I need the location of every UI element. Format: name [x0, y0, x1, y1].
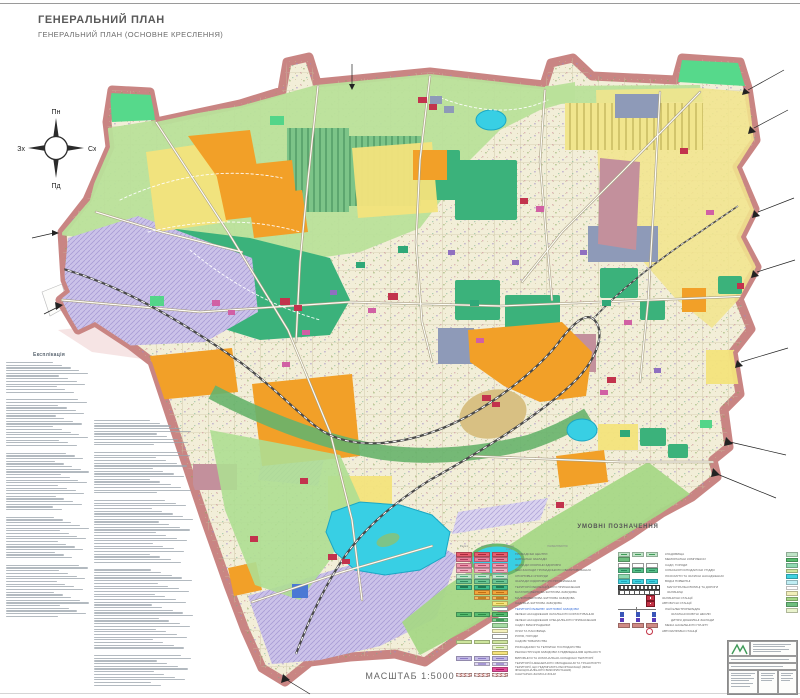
legend-swatch — [632, 629, 644, 634]
explication-line — [6, 463, 64, 464]
legend-swatch-inner — [478, 565, 486, 566]
explication-line — [6, 522, 71, 523]
legend-swatch-inner — [460, 554, 468, 555]
legend-row-label: ЛІНІЇ ЕЛЕКТРОПЕРЕДАЧ — [665, 608, 700, 611]
legend-swatch — [492, 607, 508, 612]
legend-swatch — [474, 563, 490, 568]
explication-line — [94, 463, 177, 464]
road-symbol — [618, 585, 660, 590]
legend-swatch — [786, 608, 798, 613]
legend-row: КЛАДОВИЩА — [618, 552, 796, 557]
explication-line — [6, 578, 85, 579]
explication-line — [6, 426, 53, 427]
legend-swatch-inner — [649, 554, 655, 555]
explication-line — [94, 674, 164, 675]
legend-row: МЕЖА НАСЕЛЕНОГО ПУНКТУ — [618, 623, 796, 628]
legend-swatch — [632, 623, 644, 628]
legend-col-header: на I чергу — [478, 545, 494, 548]
legend-row-label: САДОВІ ТОВАРИСТВА — [515, 640, 547, 643]
genplan-sheet: { "header": { "title": "ГЕНЕРАЛЬНИЙ ПЛАН… — [0, 0, 800, 698]
legend-swatch-inner — [460, 559, 468, 560]
legend-row: ЗАЛІЗНИЧНІ СТАНЦІЇ — [618, 596, 796, 601]
explication-line — [94, 580, 192, 581]
legend-row-label: КЛАДОВИЩА — [665, 553, 684, 556]
explication-line — [6, 399, 78, 400]
legend-swatch — [618, 552, 630, 557]
legend-row-label: ТЕРИТОРІЇ РЕКРЕАЦІЙНОГО ПРИЗНАЧЕННЯ — [515, 586, 580, 589]
explication-line — [6, 586, 74, 587]
explication-line — [94, 511, 162, 512]
explication-line — [94, 428, 181, 429]
legend-swatch-inner — [649, 581, 655, 582]
explication-line — [94, 431, 191, 432]
legend-swatch — [492, 552, 508, 557]
legend-row: АВТОЗАПРАВНІ СТАНЦІЇ — [618, 629, 796, 634]
explication-line — [6, 381, 77, 382]
legend-row-label: ВИРОБНИЧІ ТА КОМУНАЛЬНО-СКЛАДСЬКІ ТЕРИТО… — [515, 657, 593, 660]
explication-line — [6, 573, 68, 574]
legend-swatch — [618, 596, 630, 601]
legend-swatch — [474, 656, 490, 661]
legend-swatch — [474, 651, 490, 656]
explication-line — [94, 540, 187, 541]
legend-swatch — [786, 569, 798, 574]
explication-line — [94, 626, 190, 627]
legend-row-label: САДИБНА ЖИТЛОВА ЗАБУДОВА — [515, 602, 562, 605]
explication-line — [6, 557, 72, 558]
explication-line — [6, 367, 71, 368]
legend-row-label: РІЛЛЯ, ГОРОДИ — [515, 635, 538, 638]
legend-row-label: ЗЕЛЕНІ НАСАДЖЕННЯ СПЕЦІАЛЬНОГО ПРИЗНАЧЕН… — [515, 619, 596, 622]
explication-line — [6, 536, 77, 537]
explication-gap — [94, 687, 196, 692]
legend-row-label: АВТОБУСНІ СТАНЦІЇ — [662, 602, 692, 605]
legend-swatch-inner — [621, 570, 627, 571]
legend-swatch — [456, 662, 472, 667]
explication-line — [6, 490, 76, 491]
explication-line — [94, 588, 179, 589]
legend-swatch — [492, 618, 508, 623]
explication-line — [6, 477, 70, 478]
explication-line — [6, 576, 77, 577]
legend-swatch-inner — [478, 614, 486, 615]
explication-line — [6, 533, 69, 534]
explication-line — [6, 402, 87, 403]
explication-line — [94, 572, 161, 573]
legend-swatch — [492, 634, 508, 639]
stamp-col-left — [728, 670, 758, 694]
legend-row-label: ТЕРИТОРІЇ РЕЗЕРВУ ЖИТЛОВОЇ ЗАБУДОВИ — [515, 608, 579, 611]
explication-line — [6, 445, 77, 446]
explication-line — [6, 432, 71, 433]
legend-swatch — [456, 579, 472, 584]
legend-swatch — [474, 574, 490, 579]
legend-swatch — [474, 623, 490, 628]
legend-extra-swatches — [786, 552, 798, 614]
legend-swatch-inner — [496, 619, 504, 620]
explication-line — [6, 608, 69, 609]
legend-row: ЛІСОСМУГИ ТА ЗАХИСНІ НАСАДЖЕННЯ — [618, 574, 796, 579]
explication-line — [94, 442, 188, 443]
explication-gap — [6, 448, 92, 453]
explication-line — [94, 500, 165, 501]
legend-swatch-inner — [478, 658, 486, 659]
explication-line — [94, 660, 157, 661]
legend-row: ІНШІ ЗАКЛАДИ ГРОМАДСЬКОГО ОБСЛУГОВУВАННЯ — [456, 568, 612, 573]
legend-swatch — [618, 574, 630, 579]
explication-line — [6, 528, 89, 529]
legend-swatch — [492, 590, 508, 595]
explication-line — [6, 589, 83, 590]
facility-square-symbol — [652, 618, 656, 622]
explication-line — [6, 538, 86, 539]
explication-text-lines — [94, 420, 196, 692]
explication-line — [6, 584, 65, 585]
legend-swatch — [492, 568, 508, 573]
explication-line — [6, 565, 79, 566]
stamp-col-right — [778, 670, 797, 694]
explication-line — [94, 634, 177, 635]
explication-line — [6, 480, 78, 481]
legend-swatch — [492, 574, 508, 579]
explication-line — [94, 577, 182, 578]
explication-line — [6, 610, 77, 611]
explication-line — [94, 658, 191, 659]
legend-swatch — [632, 574, 644, 579]
legend-swatch-inner — [496, 603, 504, 604]
legend-swatch-inner — [496, 581, 504, 582]
legend-row-label: МЕЖА НАСЕЛЕНОГО ПУНКТУ — [665, 624, 708, 627]
facility-square-symbol — [620, 618, 624, 622]
legend-swatch — [456, 590, 472, 595]
explication-line — [6, 405, 58, 406]
explication-line — [6, 434, 79, 435]
explication-line — [94, 642, 163, 643]
legend-row: ВОДНІ ПОВЕРХНІ — [618, 579, 796, 584]
explication-line — [94, 575, 172, 576]
legend-row: МАЛОПОВЕРХОВА ЖИТЛОВА ЗАБУДОВА — [456, 596, 612, 601]
explication-column-1: Експлікація — [6, 352, 92, 624]
explication-line — [6, 421, 73, 422]
legend-row: ЗАКЛАДИ ОХОРОНИ ЗДОРОВ'Я — [456, 563, 612, 568]
legend-swatch — [456, 557, 472, 562]
legend-swatch-inner — [496, 565, 504, 566]
explication-line — [94, 505, 186, 506]
legend-swatch — [456, 651, 472, 656]
legend-swatch-inner — [649, 570, 655, 571]
facility-square-symbol — [652, 612, 656, 616]
explication-line — [94, 647, 184, 648]
legend-swatch — [492, 601, 508, 606]
legend-swatch — [786, 586, 798, 591]
legend-row-label: ЗАЛІЗНИЦІ — [667, 591, 683, 594]
explication-line — [94, 455, 190, 456]
legend-swatch-inner — [496, 592, 504, 593]
explication-line — [94, 586, 168, 587]
legend-row: ТЕРИТОРІЇ РЕЗЕРВУ ЖИТЛОВОЇ ЗАБУДОВИ — [456, 607, 612, 612]
explication-line — [94, 607, 162, 608]
legend-swatch — [474, 618, 490, 623]
legend-row-label: САДИ, ГОРОДИ — [665, 564, 687, 567]
explication-column-2 — [94, 420, 196, 692]
legend-swatch — [786, 591, 798, 596]
legend-swatch-inner — [496, 597, 504, 598]
legend-swatch-inner — [496, 554, 504, 555]
legend-swatch — [456, 629, 472, 634]
legend-swatch — [474, 596, 490, 601]
explication-line — [94, 618, 159, 619]
legend-swatch-inner — [478, 586, 486, 587]
legend-row-label: МЕМОРІАЛЬНІ КОМПЛЕКСИ — [665, 558, 706, 561]
explication-line — [94, 682, 151, 683]
explication-line — [94, 610, 173, 611]
explication-line — [6, 373, 88, 374]
legend-row: САДИ І ВИНОГРАДНИКИ — [456, 623, 612, 628]
explication-line — [94, 594, 155, 595]
explication-line — [94, 503, 176, 504]
explication-line — [94, 655, 181, 656]
legend-row-label: ВОДНІ ПОВЕРХНІ — [665, 580, 690, 583]
explication-line — [94, 685, 161, 686]
legend-swatch — [632, 601, 644, 606]
legend-swatch — [786, 597, 798, 602]
title-block-stamp — [727, 640, 798, 695]
explication-line — [6, 375, 59, 376]
explication-line — [94, 524, 169, 525]
explication-line — [94, 521, 159, 522]
legend-swatch — [492, 651, 508, 656]
legend-swatch — [786, 558, 798, 563]
legend-swatch — [646, 557, 658, 562]
legend-swatch — [618, 629, 630, 634]
explication-line — [6, 501, 73, 502]
explication-line — [94, 554, 150, 555]
explication-line — [6, 616, 58, 617]
explication-line — [94, 490, 191, 491]
explication-line — [6, 423, 82, 424]
legend-swatch — [618, 568, 630, 573]
explication-line — [94, 420, 150, 421]
explication-line — [94, 471, 163, 472]
explication-line — [6, 440, 59, 441]
legend-row: ЗАГАЛЬНООСВІТНІ ШКОЛИ — [618, 612, 796, 617]
legend-row: НАВЧАЛЬНІ ЗАКЛАДИ — [456, 557, 612, 562]
explication-line — [94, 645, 174, 646]
legend-row: АВТОБУСНІ СТАНЦІЇ — [618, 601, 796, 606]
legend-swatch — [474, 640, 490, 645]
legend-swatch-inner — [496, 647, 504, 648]
explication-line — [94, 484, 171, 485]
legend-swatch — [474, 557, 490, 562]
explication-line — [94, 433, 157, 434]
explication-line — [94, 631, 166, 632]
explication-line — [6, 594, 63, 595]
explication-line — [6, 496, 56, 497]
explication-line — [94, 516, 183, 517]
explication-line — [6, 600, 80, 601]
legend-row-label: СІЛЬСЬКОГОСПОДАРСЬКІ УГІДДЯ — [665, 569, 715, 572]
legend-row: РІЛЛЯ, ГОРОДИ — [456, 634, 612, 639]
legend-swatch — [632, 563, 644, 568]
legend-swatch — [474, 552, 490, 557]
legend-swatch-inner — [460, 581, 468, 582]
explication-line — [94, 637, 187, 638]
legend-right-table: КЛАДОВИЩАМЕМОРІАЛЬНІ КОМПЛЕКСИСАДИ, ГОРО… — [618, 552, 796, 634]
explication-title: Експлікація — [6, 352, 92, 358]
explication-line — [94, 529, 190, 530]
explication-line — [94, 583, 158, 584]
legend-swatch — [786, 574, 798, 579]
explication-line — [6, 570, 59, 571]
legend-row: РОЗСАДНИКИ ТА ТЕПЛИЧНІ ГОСПОДАРСТВА — [456, 645, 612, 650]
explication-line — [94, 468, 153, 469]
legend-swatch — [456, 601, 472, 606]
legend-swatch — [474, 607, 490, 612]
compass-east-label: Сх — [88, 146, 96, 153]
explication-line — [6, 365, 62, 366]
legend-row: ЛУКИ ТА ПАСОВИЩА — [456, 629, 612, 634]
explication-line — [6, 384, 85, 385]
compass-circle — [45, 137, 68, 160]
legend-swatch — [646, 623, 658, 628]
legend-swatch — [632, 579, 644, 584]
legend-swatch — [618, 557, 630, 562]
explication-line — [6, 613, 86, 614]
stamp-logo — [729, 642, 751, 657]
explication-line — [6, 541, 58, 542]
explication-line — [94, 559, 171, 560]
explication-line — [94, 527, 180, 528]
legend-swatch-inner — [478, 663, 486, 664]
legend-swatch — [646, 579, 658, 584]
legend-swatch — [456, 568, 472, 573]
explication-line — [94, 666, 178, 667]
zone-green-block-nw — [110, 93, 155, 122]
explication-line — [6, 442, 68, 443]
legend-row-label: ГРОМАДСЬКІ ЦЕНТРИ — [515, 553, 547, 556]
legend-swatch — [474, 662, 490, 667]
legend-row: СПОРТИВНІ СПОРУДИ — [456, 574, 612, 579]
compass-south-label: Пд — [51, 183, 60, 190]
explication-line — [6, 469, 81, 470]
legend-swatch-inner — [496, 663, 504, 664]
legend-swatch — [786, 563, 798, 568]
explication-line — [6, 415, 56, 416]
compass-west-label: Зх — [17, 146, 25, 153]
legend-swatch-inner — [496, 586, 504, 587]
explication-line — [94, 546, 163, 547]
legend-row-label: САДИ І ВИНОГРАДНИКИ — [515, 624, 550, 627]
legend-swatch — [646, 552, 658, 557]
legend-swatch-inner — [478, 592, 486, 593]
legend-left-table: ГРОМАДСЬКІ ЦЕНТРИНАВЧАЛЬНІ ЗАКЛАДИЗАКЛАД… — [456, 552, 612, 678]
explication-line — [94, 535, 166, 536]
legend-row-label: НАВЧАЛЬНІ ЗАКЛАДИ — [515, 558, 547, 561]
legend-swatch — [456, 656, 472, 661]
legend-row-label: ЗАЛІЗНИЧНІ СТАНЦІЇ — [662, 597, 693, 600]
explication-gap — [6, 619, 92, 624]
explication-line — [6, 386, 57, 387]
explication-line — [94, 481, 160, 482]
explication-line — [6, 544, 66, 545]
explication-line — [94, 620, 169, 621]
legend-row: САДИБНА ЖИТЛОВА ЗАБУДОВА — [456, 601, 612, 606]
legend-col-header: існуючі — [456, 545, 472, 548]
explication-line — [94, 671, 154, 672]
legend-row-label: МАЛОПОВЕРХОВА ЖИТЛОВА ЗАБУДОВА — [515, 597, 575, 600]
legend-swatch — [456, 623, 472, 628]
explication-line — [6, 429, 62, 430]
explication-line — [6, 567, 88, 568]
explication-line — [6, 605, 60, 606]
legend-swatch — [474, 629, 490, 634]
legend-swatch-inner — [478, 554, 486, 555]
explication-line — [94, 538, 177, 539]
explication-line — [94, 591, 189, 592]
explication-line — [6, 407, 67, 408]
legend-swatch-inner — [460, 570, 468, 571]
legend-swatch — [492, 563, 508, 568]
explication-line — [94, 604, 152, 605]
explication-line — [94, 476, 184, 477]
legend-swatch — [632, 557, 644, 562]
legend-row: МАГІСТРАЛЬНІ ВУЛИЦІ ТА ДОРОГИ — [618, 585, 796, 590]
legend-swatch — [456, 563, 472, 568]
explication-line — [94, 423, 160, 424]
legend-row: САДОВІ ТОВАРИСТВА — [456, 640, 612, 645]
explication-line — [94, 492, 157, 493]
explication-line — [6, 509, 62, 510]
legend-row-label: СПОРТИВНІ СПОРУДИ — [515, 575, 548, 578]
legend-swatch — [456, 596, 472, 601]
legend-swatch-inner — [621, 554, 627, 555]
explication-line — [6, 592, 54, 593]
legend-row-label: ЗАКЛАДИ ОХОРОНИ ЗДОРОВ'Я — [515, 564, 561, 567]
explication-line — [6, 488, 67, 489]
legend-swatch-inner — [635, 554, 641, 555]
legend-swatch-inner — [621, 581, 627, 582]
legend-col-header: на розрах. строк — [501, 545, 517, 551]
legend-swatch-inner — [496, 669, 504, 670]
compass-rose: Пн Пд Сх Зх — [16, 104, 96, 190]
explication-line — [94, 452, 180, 453]
explication-line — [94, 569, 151, 570]
legend-swatch — [456, 645, 472, 650]
stamp-row — [728, 663, 797, 670]
legend-swatch — [474, 645, 490, 650]
legend-row-label: АВТОЗАПРАВНІ СТАНЦІЇ — [662, 630, 697, 633]
legend-swatch-inner — [478, 576, 486, 577]
explication-line — [94, 465, 187, 466]
explication-line — [94, 436, 167, 437]
legend-row-label: ЗАГАЛЬНООСВІТНІ ШКОЛИ — [671, 613, 711, 616]
explication-line — [94, 562, 181, 563]
legend-swatch — [474, 601, 490, 606]
explication-line — [94, 460, 166, 461]
legend-row: ЗЕЛЕНІ НАСАДЖЕННЯ СПЕЦІАЛЬНОГО ПРИЗНАЧЕН… — [456, 618, 612, 623]
legend-swatch-inner — [478, 570, 486, 571]
legend-swatch — [646, 568, 658, 573]
explication-line — [94, 551, 184, 552]
legend-swatch — [618, 563, 630, 568]
compass-north-label: Пн — [52, 109, 61, 116]
legend-swatch-inner — [635, 570, 641, 571]
facility-square-symbol — [620, 612, 624, 616]
legend-swatch-inner — [496, 658, 504, 659]
legend-swatch-inner — [460, 614, 468, 615]
legend-swatch-inner — [460, 565, 468, 566]
explication-line — [6, 549, 83, 550]
